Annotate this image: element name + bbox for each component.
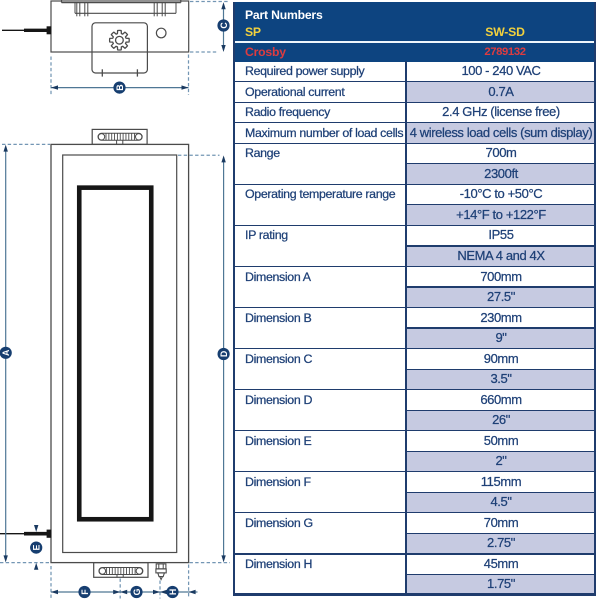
svg-text:G: G xyxy=(132,588,142,595)
svg-text:B: B xyxy=(115,84,125,90)
svg-text:C: C xyxy=(219,22,229,29)
svg-text:E: E xyxy=(32,545,42,551)
svg-text:A: A xyxy=(1,349,11,356)
svg-text:F: F xyxy=(80,589,90,595)
svg-text:D: D xyxy=(219,351,229,357)
svg-text:H: H xyxy=(168,589,178,595)
